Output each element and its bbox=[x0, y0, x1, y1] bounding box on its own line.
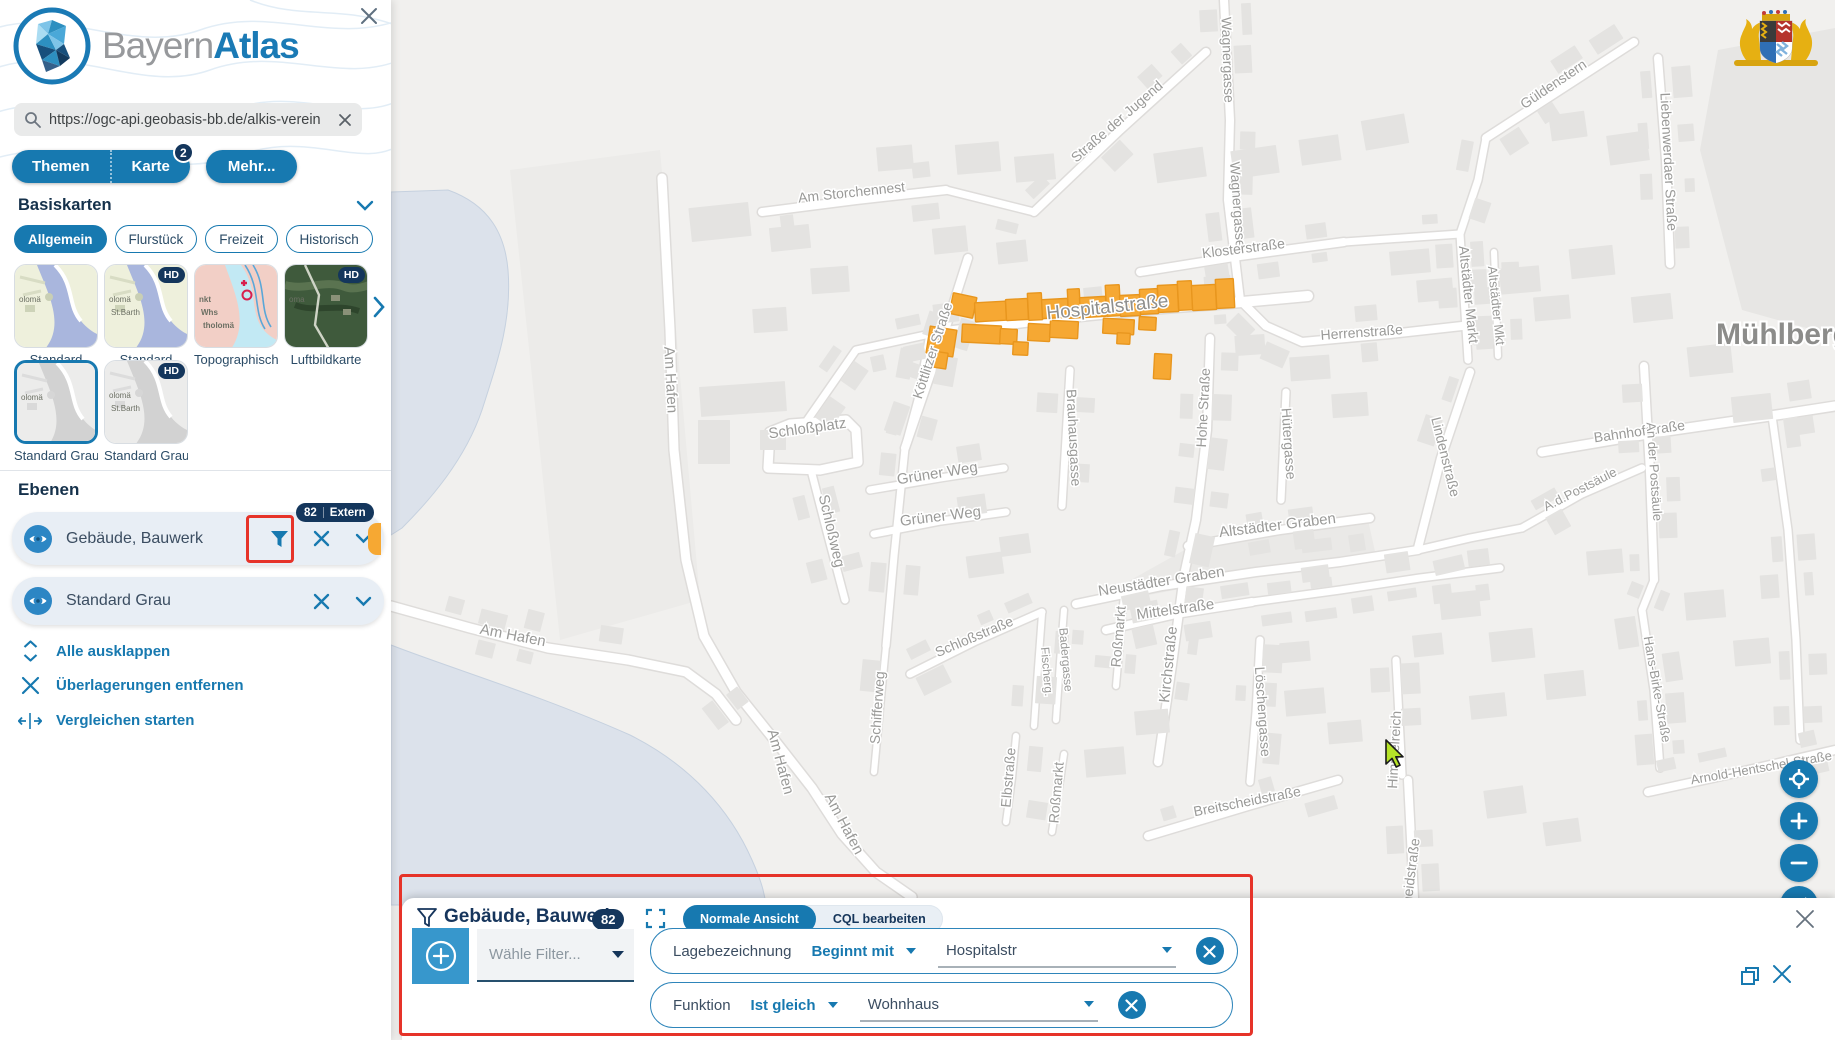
action-label: Vergleichen starten bbox=[56, 712, 194, 729]
thumb-map-text: St.Barth bbox=[111, 308, 140, 317]
sidebar-panel: BayernAtlas https://ogc-api.geobasis-bb.… bbox=[0, 0, 391, 1040]
shield bbox=[1760, 21, 1792, 63]
filter-value-input[interactable]: Wohnhaus bbox=[860, 988, 1098, 1022]
chevron-down-icon bbox=[612, 951, 624, 958]
chip-freizeit[interactable]: Freizeit bbox=[205, 225, 277, 253]
filter-field-select[interactable]: Wähle Filter... bbox=[477, 929, 634, 982]
filter-value-text: Hospitalstr bbox=[946, 942, 1162, 959]
geolocate-button[interactable] bbox=[1780, 760, 1818, 798]
ebenen-title: Ebenen bbox=[18, 480, 79, 500]
filter-operator-select[interactable]: Ist gleich bbox=[751, 997, 816, 1014]
close-icon[interactable] bbox=[1770, 962, 1794, 986]
chip-allgemein[interactable]: Allgemein bbox=[14, 225, 107, 253]
expand-layer-button[interactable] bbox=[342, 596, 384, 607]
filter-value-text: Wohnhaus bbox=[868, 996, 1084, 1013]
plus-circle-icon bbox=[424, 939, 458, 973]
close-icon bbox=[18, 676, 42, 695]
layer-drag-handle[interactable] bbox=[368, 523, 381, 555]
basemap-label: Standard Grau bbox=[14, 448, 98, 463]
filter-row-funktion: FunktionIst gleichWohnhaus bbox=[650, 982, 1233, 1028]
thumb-map-text: olomä bbox=[109, 295, 131, 304]
thumb-map-text: tholomä bbox=[203, 321, 234, 330]
main-tabs: Themen Karte2 Mehr... bbox=[12, 150, 297, 183]
action-label: Alle ausklappen bbox=[56, 643, 170, 660]
close-icon bbox=[359, 6, 379, 26]
geolocate-icon bbox=[1788, 768, 1810, 790]
crown bbox=[1762, 10, 1790, 21]
restore-window-icon[interactable] bbox=[1740, 966, 1760, 986]
thumb-map-text: Whs bbox=[201, 308, 218, 317]
chevron-down-icon bbox=[1084, 1001, 1094, 1007]
clear-search-icon[interactable] bbox=[338, 113, 352, 127]
chevron-down-icon bbox=[906, 948, 916, 954]
filter-icon bbox=[416, 907, 438, 929]
filter-panel-title: Gebäude, Bauwerk bbox=[444, 906, 615, 928]
action-vergleichen-starten[interactable]: Vergleichen starten bbox=[18, 712, 194, 729]
zoom-out-icon bbox=[1789, 853, 1809, 873]
basiskarten-title: Basiskarten bbox=[18, 196, 112, 215]
thumb-map-text: olomä bbox=[21, 393, 43, 402]
remove-layer-button[interactable] bbox=[300, 530, 342, 547]
filter-field-label: Funktion bbox=[673, 997, 731, 1014]
thumb-map-text: nkt bbox=[199, 295, 211, 304]
basemap-category-chips: AllgemeinFlurstückFreizeitHistorisch bbox=[14, 225, 373, 253]
chevron-down-icon bbox=[828, 1002, 838, 1008]
section-divider bbox=[0, 470, 391, 471]
basemap-thumb-standard-grau-hd[interactable]: olomäSt.BarthHDStandard Grau bbox=[104, 360, 188, 463]
brand-wordmark: BayernAtlas bbox=[102, 25, 299, 67]
svg-text:Am Hafen: Am Hafen bbox=[660, 346, 680, 414]
basemap-label: Luftbildkarte bbox=[284, 352, 368, 367]
zoom-in-button[interactable] bbox=[1780, 802, 1818, 840]
hd-badge: HD bbox=[158, 267, 185, 283]
chip-historisch[interactable]: Historisch bbox=[286, 225, 373, 253]
filter-row-lagebezeichnung: LagebezeichnungBeginnt mitHospitalstr bbox=[650, 928, 1238, 974]
filter-value-input[interactable]: Hospitalstr bbox=[938, 934, 1176, 968]
app-logo[interactable]: BayernAtlas bbox=[12, 6, 299, 86]
hd-badge: HD bbox=[338, 267, 365, 283]
basemap-thumb-standard-hd[interactable]: olomäSt.BarthHDStandard bbox=[104, 264, 188, 367]
chevron-down-icon bbox=[1162, 947, 1172, 953]
search-bar[interactable]: https://ogc-api.geobasis-bb.de/alkis-ver… bbox=[14, 103, 362, 136]
basemap-thumbnails-row1: olomäStandard olomäSt.BarthHDStandard nk… bbox=[14, 264, 368, 367]
compare-icon bbox=[18, 713, 42, 729]
expand-vertical-icon bbox=[18, 640, 42, 662]
thumb-map-text: oma bbox=[289, 295, 305, 304]
filter-panel: Gebäude, Bauwerk 82 Normale AnsichtCQL b… bbox=[402, 898, 1835, 1040]
karte-count-badge: 2 bbox=[173, 142, 194, 163]
add-filter-button[interactable] bbox=[412, 928, 469, 984]
close-sidebar-button[interactable] bbox=[359, 6, 379, 31]
thumb-map-text: olomä bbox=[19, 295, 41, 304]
chevron-right-icon[interactable] bbox=[372, 295, 386, 319]
layer-row-standard-grau[interactable]: Standard Grau bbox=[12, 577, 384, 625]
remove-layer-button[interactable] bbox=[300, 593, 342, 610]
eye-icon[interactable] bbox=[24, 525, 52, 553]
layer-label: Gebäude, Bauwerk bbox=[66, 530, 258, 548]
search-input[interactable]: https://ogc-api.geobasis-bb.de/alkis-ver… bbox=[49, 112, 330, 128]
tab-karte[interactable]: Karte2 bbox=[110, 150, 190, 183]
hd-badge: HD bbox=[158, 363, 185, 379]
basemap-thumb-luftbildkarte-hd[interactable]: omaHDLuftbildkarte bbox=[284, 264, 368, 367]
thumb-map-text: olomä bbox=[109, 391, 131, 400]
action-alle-ausklappen[interactable]: Alle ausklappen bbox=[18, 640, 170, 662]
layer-filter-button[interactable] bbox=[258, 530, 300, 548]
bavaria-logo-icon bbox=[12, 6, 92, 86]
select-placeholder: Wähle Filter... bbox=[489, 946, 612, 963]
remove-filter-button[interactable] bbox=[1118, 991, 1146, 1019]
bayernatlas-app: WagnergasseWagnergasseStraße der JugendA… bbox=[0, 0, 1835, 1040]
basemap-preview: nktWhstholomä bbox=[194, 264, 278, 348]
basemap-thumb-standard[interactable]: olomäStandard bbox=[14, 264, 98, 367]
basiskarten-header[interactable]: Basiskarten bbox=[18, 196, 374, 215]
action--berlagerungen-entfernen[interactable]: Überlagerungen entfernen bbox=[18, 676, 244, 695]
zoom-in-icon bbox=[1789, 811, 1809, 831]
layer-extern-badge: 82Extern bbox=[296, 503, 374, 522]
filter-operator-select[interactable]: Beginnt mit bbox=[811, 943, 894, 960]
thumb-map-text: St.Barth bbox=[111, 404, 140, 413]
chip-flurstck[interactable]: Flurstück bbox=[115, 225, 198, 253]
result-count-badge: 82 bbox=[592, 909, 624, 930]
layer-label: Standard Grau bbox=[66, 592, 300, 610]
svg-text:Wagnergasse: Wagnergasse bbox=[1219, 17, 1238, 104]
fullscreen-icon[interactable] bbox=[645, 908, 666, 929]
zoom-out-button[interactable] bbox=[1780, 844, 1818, 882]
tab-mehr[interactable]: Mehr... bbox=[206, 150, 298, 183]
place-label-muehlberg: Mühlberg bbox=[1716, 318, 1835, 351]
basemap-label: Standard Grau bbox=[104, 448, 188, 463]
basemap-thumbnails-row2: olomäStandard Grau olomäSt.BarthHDStanda… bbox=[14, 360, 188, 463]
basemap-label: Topographisch bbox=[194, 352, 278, 367]
close-panel-icon[interactable] bbox=[1794, 908, 1816, 930]
bavaria-coat-of-arms bbox=[1732, 8, 1820, 70]
tab-themen[interactable]: Themen bbox=[12, 150, 110, 183]
basemap-thumb-standard-grau[interactable]: olomäStandard Grau bbox=[14, 360, 98, 463]
remove-filter-button[interactable] bbox=[1196, 937, 1224, 965]
chevron-down-icon[interactable] bbox=[356, 200, 374, 211]
search-icon bbox=[24, 111, 41, 128]
basemap-preview: olomä bbox=[14, 264, 98, 348]
eye-icon[interactable] bbox=[24, 587, 52, 615]
basemap-preview: olomä bbox=[14, 360, 98, 444]
action-label: Überlagerungen entfernen bbox=[56, 677, 244, 694]
basemap-thumb-topographisch[interactable]: nktWhstholomäTopographisch bbox=[194, 264, 278, 367]
filter-field-label: Lagebezeichnung bbox=[673, 943, 791, 960]
